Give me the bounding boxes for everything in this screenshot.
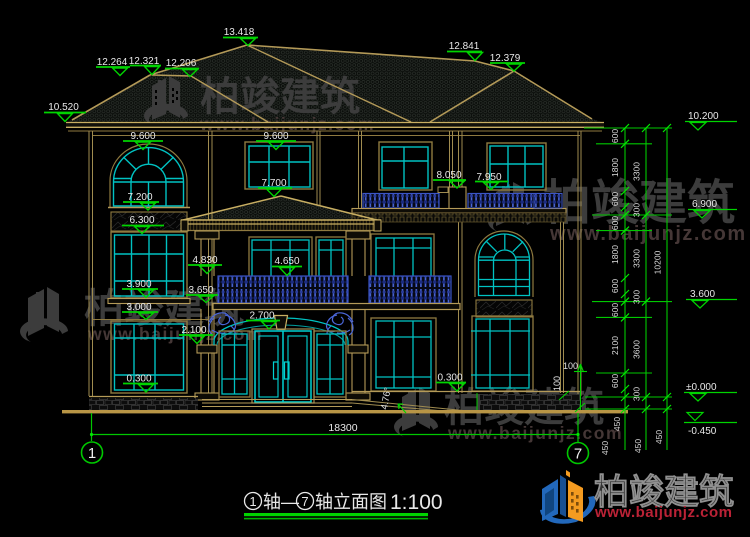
svg-text:100: 100 <box>552 376 562 391</box>
svg-text:10.520: 10.520 <box>48 102 79 113</box>
svg-text:www.baijunjz.com: www.baijunjz.com <box>549 223 747 245</box>
svg-text:600: 600 <box>610 374 620 388</box>
svg-text:450: 450 <box>654 430 664 444</box>
svg-text:柏竣建筑: 柏竣建筑 <box>200 75 360 119</box>
svg-text:600: 600 <box>610 279 620 293</box>
svg-text:7: 7 <box>301 494 308 509</box>
svg-text:450: 450 <box>600 441 610 455</box>
svg-text:13.418: 13.418 <box>224 27 255 38</box>
svg-text:3300: 3300 <box>632 162 642 181</box>
svg-text:450: 450 <box>612 417 622 431</box>
svg-text:12.206: 12.206 <box>166 58 197 69</box>
svg-text:10.200: 10.200 <box>688 111 719 122</box>
svg-text:轴—: 轴— <box>263 492 299 512</box>
svg-text:www.baijunjz.com: www.baijunjz.com <box>447 423 623 443</box>
svg-text:300: 300 <box>632 290 642 304</box>
svg-text:6.900: 6.900 <box>692 199 717 210</box>
svg-text:12.841: 12.841 <box>449 41 480 52</box>
svg-text:1: 1 <box>88 445 96 462</box>
svg-text:www.baijunjz.com: www.baijunjz.com <box>594 504 732 521</box>
svg-text:450: 450 <box>633 439 643 453</box>
svg-text:3300: 3300 <box>632 249 642 268</box>
svg-text:6.300: 6.300 <box>129 215 154 226</box>
svg-text:600: 600 <box>610 192 620 206</box>
svg-text:10200: 10200 <box>653 250 663 274</box>
svg-text:1: 1 <box>249 494 256 509</box>
svg-text:1:100: 1:100 <box>390 491 443 514</box>
svg-text:±0.000: ±0.000 <box>686 382 717 393</box>
svg-text:4.650: 4.650 <box>274 256 299 267</box>
svg-text:3.600: 3.600 <box>690 289 715 300</box>
svg-text:-0.450: -0.450 <box>688 426 717 437</box>
svg-text:600: 600 <box>610 129 620 143</box>
svg-text:3600: 3600 <box>632 340 642 359</box>
svg-text:100: 100 <box>563 361 578 371</box>
svg-text:600: 600 <box>610 303 620 317</box>
svg-text:轴立面图: 轴立面图 <box>315 492 387 512</box>
svg-text:2100: 2100 <box>610 336 620 355</box>
svg-text:300: 300 <box>632 387 642 401</box>
svg-text:1800: 1800 <box>610 158 620 177</box>
svg-text:1800: 1800 <box>610 245 620 264</box>
svg-text:18300: 18300 <box>328 422 357 434</box>
svg-text:7: 7 <box>574 446 582 463</box>
svg-text:600: 600 <box>610 216 620 230</box>
svg-text:300: 300 <box>632 203 642 217</box>
